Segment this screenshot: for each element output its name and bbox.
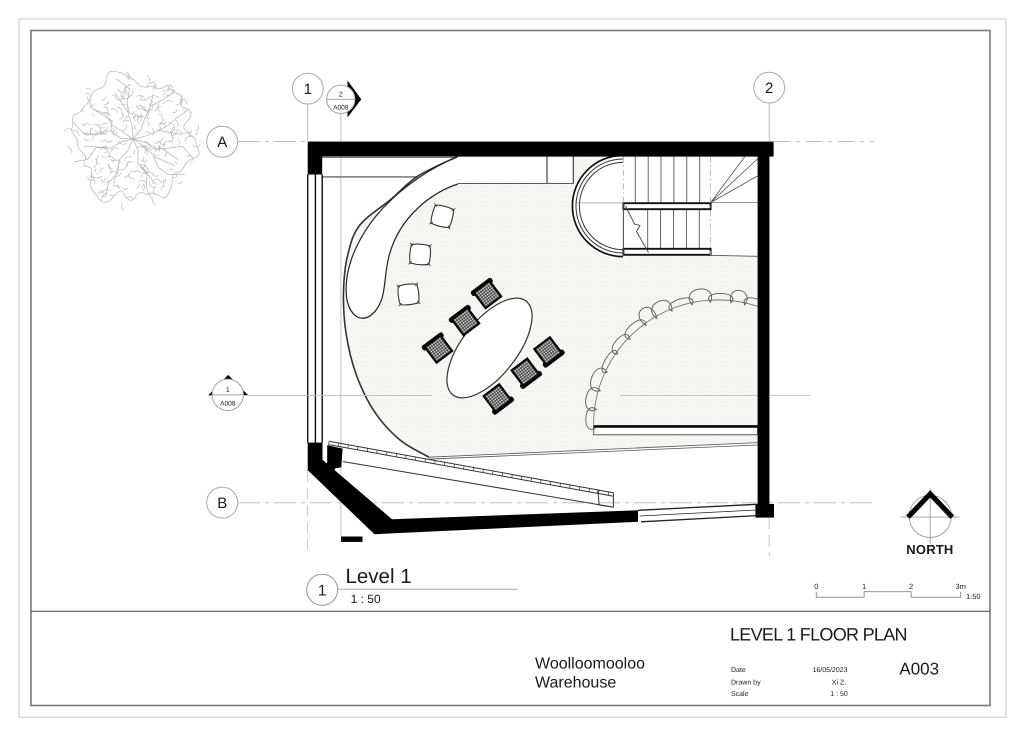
svg-text:A008: A008	[220, 401, 236, 408]
svg-text:Xi Z.: Xi Z.	[832, 678, 846, 686]
svg-text:16/05/2023: 16/05/2023	[812, 666, 847, 674]
svg-text:Woolloomooloo: Woolloomooloo	[535, 656, 645, 673]
svg-text:Warehouse: Warehouse	[535, 675, 616, 692]
svg-text:A003: A003	[899, 660, 939, 679]
svg-text:1 : 50: 1 : 50	[351, 592, 381, 606]
svg-text:1 : 50: 1 : 50	[830, 691, 848, 698]
svg-text:1: 1	[304, 81, 312, 98]
svg-text:2: 2	[765, 80, 773, 97]
svg-text:Drawn by: Drawn by	[731, 678, 761, 686]
svg-text:Level 1: Level 1	[346, 565, 412, 588]
svg-text:3m: 3m	[955, 582, 965, 591]
svg-text:A008: A008	[333, 105, 349, 112]
svg-text:B: B	[217, 495, 227, 512]
svg-text:2: 2	[339, 92, 343, 99]
svg-text:1: 1	[318, 583, 327, 600]
svg-text:LEVEL 1 FLOOR PLAN: LEVEL 1 FLOOR PLAN	[730, 625, 907, 645]
svg-text:1: 1	[862, 582, 866, 591]
svg-text:2: 2	[909, 582, 913, 591]
svg-text:1: 1	[226, 387, 230, 394]
svg-text:Scale: Scale	[731, 690, 749, 698]
svg-text:0: 0	[814, 582, 818, 591]
svg-text:A: A	[217, 134, 227, 151]
svg-text:Date: Date	[731, 667, 746, 674]
svg-text:1:50: 1:50	[966, 592, 981, 601]
svg-text:NORTH: NORTH	[906, 542, 953, 557]
